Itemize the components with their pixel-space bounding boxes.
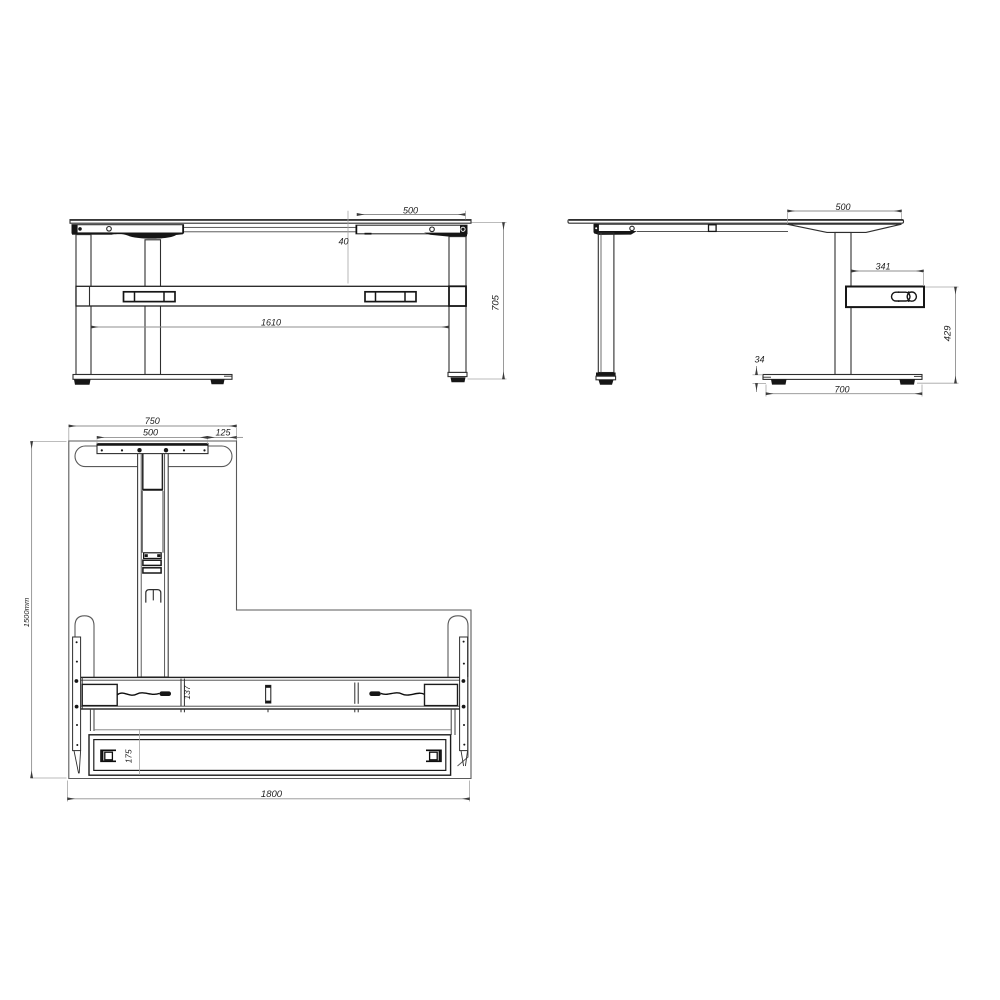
svg-text:1610: 1610 [261, 317, 281, 327]
svg-text:705: 705 [491, 294, 502, 311]
svg-text:500: 500 [403, 206, 418, 216]
svg-text:1500mm: 1500mm [22, 598, 31, 628]
svg-text:40: 40 [338, 237, 348, 247]
svg-text:1800: 1800 [261, 789, 283, 800]
svg-text:700: 700 [834, 384, 849, 394]
svg-text:500: 500 [835, 202, 850, 212]
svg-text:34: 34 [754, 355, 764, 365]
svg-text:125: 125 [215, 427, 231, 437]
svg-text:429: 429 [943, 325, 954, 342]
svg-text:175: 175 [124, 749, 134, 763]
svg-text:750: 750 [145, 416, 160, 426]
svg-text:137: 137 [182, 685, 192, 699]
svg-text:500: 500 [143, 427, 158, 437]
svg-text:341: 341 [875, 261, 890, 271]
